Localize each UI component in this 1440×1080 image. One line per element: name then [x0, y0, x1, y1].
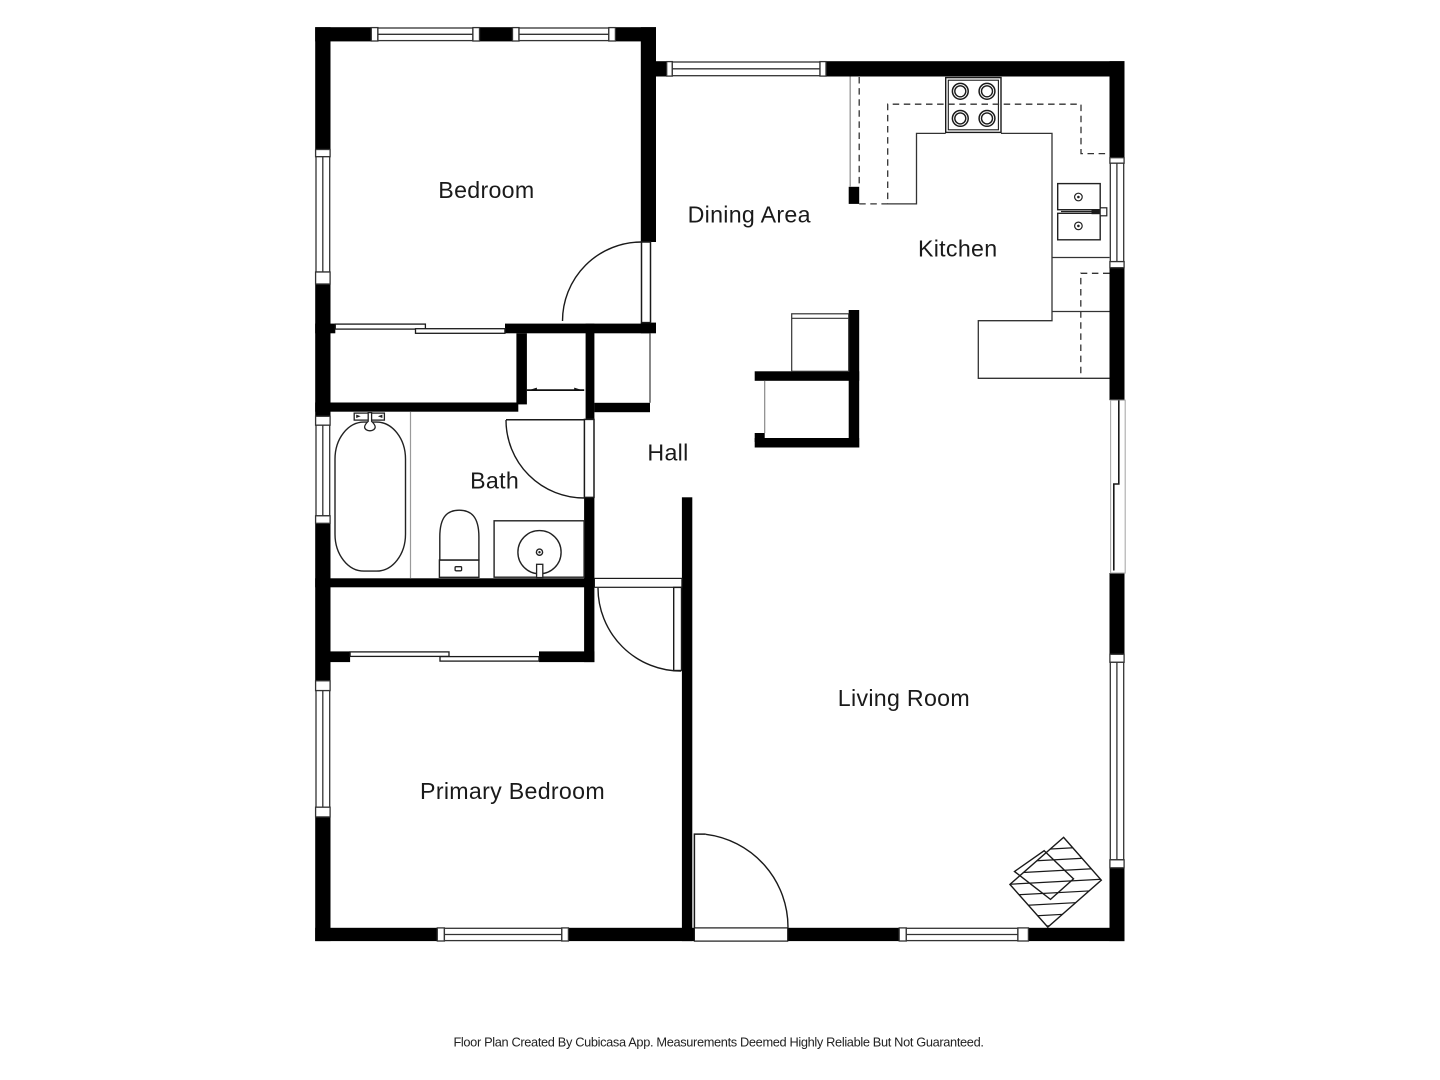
svg-text:Primary Bedroom: Primary Bedroom	[420, 778, 605, 804]
svg-text:Living Room: Living Room	[838, 685, 970, 711]
svg-text:Floor Plan Created By Cubicasa: Floor Plan Created By Cubicasa App. Meas…	[453, 1035, 983, 1050]
svg-text:Kitchen: Kitchen	[918, 235, 997, 261]
svg-text:Bedroom: Bedroom	[438, 177, 534, 203]
svg-text:Bath: Bath	[470, 468, 519, 494]
svg-text:Dining Area: Dining Area	[688, 201, 811, 227]
svg-text:Hall: Hall	[647, 439, 688, 465]
